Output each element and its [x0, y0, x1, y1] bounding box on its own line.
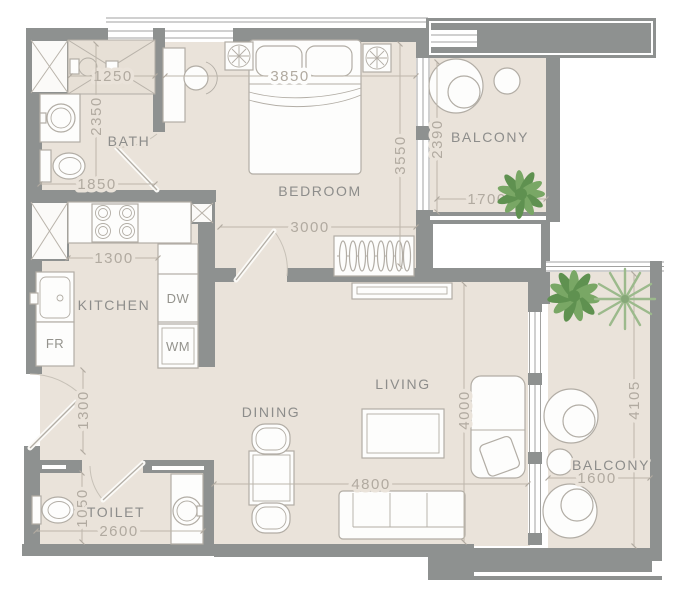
room-label-bedroom: BEDROOM — [278, 183, 362, 199]
dim-balcony-top-length: 2390 — [429, 119, 446, 158]
wall-kitchen-right — [198, 202, 215, 367]
armchair — [471, 376, 525, 478]
room-label-balcony-right: BALCONY — [572, 457, 650, 473]
dim-entry-length: 1300 — [75, 390, 92, 429]
wardrobe — [334, 236, 414, 276]
wall-toilet-dining — [203, 460, 214, 552]
coffee-table — [362, 409, 444, 458]
window-bedroom-balcony — [416, 58, 430, 210]
desk — [163, 48, 185, 122]
dim-living-width: 4800 — [351, 476, 390, 493]
window-living-balcony — [528, 302, 542, 545]
fridge: FR — [36, 322, 74, 366]
balcony-table — [547, 449, 573, 475]
sofa — [339, 491, 465, 539]
wall-top-right-slab — [426, 18, 656, 58]
window-bedroom-top — [163, 28, 233, 42]
bath-sink — [40, 94, 80, 142]
room-label-bath: BATH — [108, 133, 151, 149]
dim-bedroom-width: 3850 — [270, 68, 309, 85]
toilet-fixture — [32, 496, 74, 524]
kitchen-stove — [92, 204, 138, 242]
ac-diffuser-icon — [363, 44, 391, 72]
dim-bath-width: 1850 — [77, 176, 116, 193]
dim-shower-width: 1250 — [93, 68, 132, 85]
room-label-living: LIVING — [375, 376, 431, 392]
dishwasher: DW — [158, 274, 198, 322]
dim-kitchen-width: 1300 — [94, 250, 133, 267]
dim-balcony-right-length: 4105 — [626, 380, 643, 419]
shaft-bath — [31, 40, 68, 93]
shaft-kitchen-small — [191, 203, 213, 223]
shaft-kitchen — [31, 202, 68, 260]
shower — [68, 40, 155, 94]
washing-machine-label: WM — [166, 339, 190, 354]
balcony-table — [494, 68, 520, 94]
wall-balcony-top-right — [546, 58, 560, 222]
wall-bottom-left — [22, 544, 214, 556]
dining-chair — [252, 424, 290, 454]
floor-plan-page: FR DW WM — [0, 0, 676, 600]
dim-bedroom-wall: 3000 — [290, 219, 329, 236]
room-label-kitchen: KITCHEN — [78, 297, 151, 313]
wall-balcony-right-bottom — [474, 548, 652, 572]
tv-console — [352, 283, 452, 299]
dishwasher-label: DW — [167, 291, 190, 306]
lounge-chair-icon — [544, 389, 598, 443]
washing-machine: WM — [158, 324, 198, 368]
dining-table — [249, 451, 294, 505]
kitchen-sink — [30, 272, 74, 322]
room-label-toilet: TOILET — [87, 504, 145, 520]
dining-chair — [252, 503, 290, 533]
toilet-sink — [171, 474, 203, 544]
fridge-label: FR — [46, 336, 64, 351]
dim-bath-length: 2350 — [88, 96, 105, 135]
lounge-chair-icon — [543, 484, 597, 538]
floor-plan: FR DW WM — [0, 0, 676, 600]
parapet-balcony-right-top — [546, 261, 664, 272]
wall-bedroom-south — [287, 268, 543, 282]
room-label-dining: DINING — [242, 404, 301, 420]
dim-bedroom-length: 3550 — [392, 135, 409, 174]
dim-toilet-width: 2600 — [99, 523, 138, 540]
room-label-balcony-top: BALCONY — [451, 129, 529, 145]
ac-diffuser-icon — [225, 42, 253, 70]
dim-living-length: 4000 — [456, 390, 473, 429]
bed — [249, 40, 361, 174]
wall-bath-kitchen — [26, 190, 216, 202]
wall-balcony-right — [650, 261, 662, 561]
